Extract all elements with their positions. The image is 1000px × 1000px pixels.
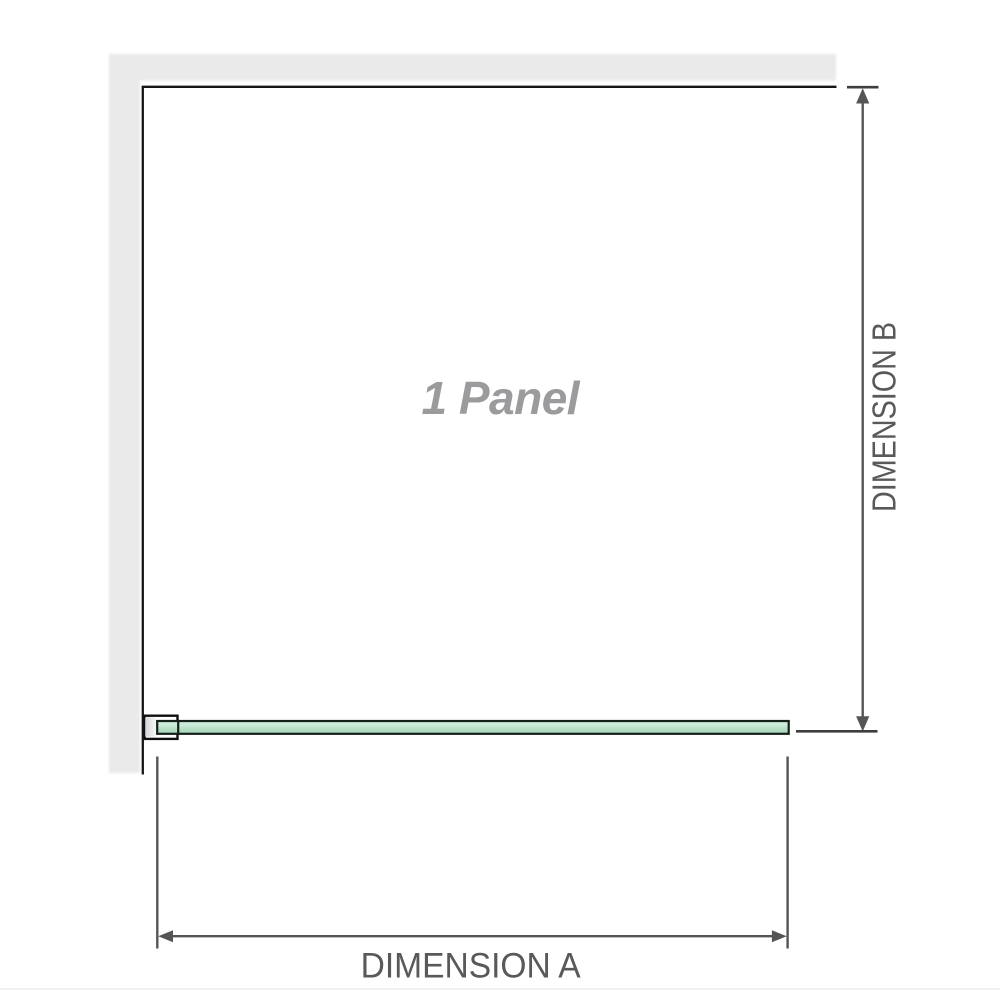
svg-text:DIMENSION B: DIMENSION B [866,322,903,512]
svg-text:1 Panel: 1 Panel [422,372,581,424]
svg-text:DIMENSION A: DIMENSION A [361,947,582,986]
